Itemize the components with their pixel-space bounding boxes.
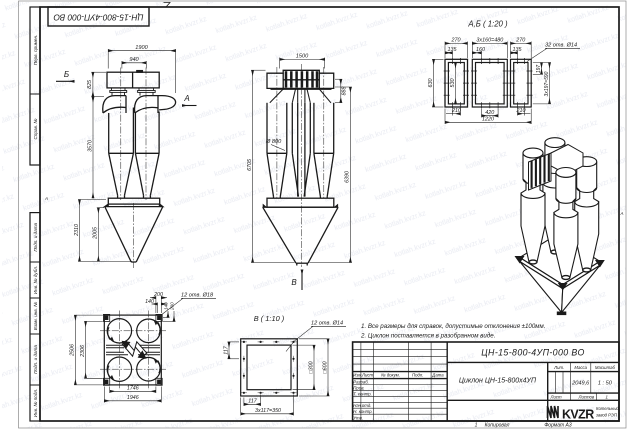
svg-text:420: 420 — [485, 110, 494, 116]
svg-text:3х160=480: 3х160=480 — [476, 38, 503, 44]
svg-text:завод РЭП: завод РЭП — [595, 413, 618, 418]
svg-text:2005: 2005 — [93, 227, 99, 240]
svg-text:Взам. инв. №: Взам. инв. № — [33, 302, 38, 330]
svg-text:Перв. примен.: Перв. примен. — [33, 35, 38, 66]
svg-text:200: 200 — [169, 302, 174, 311]
svg-text:Нач.отд.: Нач.отд. — [353, 403, 371, 408]
svg-text:530: 530 — [450, 79, 456, 88]
svg-text:135: 135 — [513, 47, 523, 53]
svg-text:ЦН-15-800-4УП-000 ВО: ЦН-15-800-4УП-000 ВО — [481, 348, 584, 358]
svg-text:Подп. и дата: Подп. и дата — [33, 222, 38, 251]
svg-text:210: 210 — [451, 108, 461, 114]
svg-text:□300: □300 — [308, 361, 314, 373]
svg-text:2506: 2506 — [70, 344, 76, 357]
svg-text:Т. контр.: Т. контр. — [353, 391, 372, 396]
svg-text:□600: □600 — [322, 361, 328, 373]
svg-text:Котельный: Котельный — [596, 406, 619, 411]
svg-text:1500: 1500 — [296, 53, 309, 59]
svg-text:2. Циклон поставляется в разоб: 2. Циклон поставляется в разобранном вид… — [360, 333, 495, 340]
svg-text:1: 1 — [475, 423, 478, 429]
svg-text:1. Все размеры для справок, до: 1. Все размеры для справок, допустимые о… — [361, 323, 546, 330]
svg-text:В ( 1:10 ): В ( 1:10 ) — [254, 314, 285, 323]
svg-text:Инв. № подл.: Инв. № подл. — [33, 389, 38, 418]
svg-text:2310: 2310 — [74, 224, 80, 237]
svg-text:Листов: Листов — [578, 395, 595, 400]
svg-text:Пров.: Пров. — [353, 385, 364, 390]
svg-text:Масса: Масса — [574, 365, 587, 370]
svg-text:3570: 3570 — [87, 140, 93, 152]
svg-text:630: 630 — [428, 79, 434, 88]
svg-text:Подп.: Подп. — [412, 373, 423, 378]
svg-text:3х197=590: 3х197=590 — [544, 71, 550, 96]
svg-text:2306: 2306 — [80, 345, 86, 358]
svg-text:Справ. №: Справ. № — [33, 119, 38, 140]
svg-text:Копировал: Копировал — [485, 423, 510, 429]
svg-text:1 : 50: 1 : 50 — [598, 381, 613, 387]
svg-text:270: 270 — [515, 38, 525, 44]
svg-text:6390: 6390 — [345, 171, 351, 183]
svg-text:Лист: Лист — [550, 395, 562, 400]
svg-text:Дата: Дата — [431, 373, 444, 378]
svg-text:117: 117 — [248, 399, 257, 405]
svg-text:140: 140 — [163, 302, 168, 310]
svg-text:940: 940 — [129, 57, 139, 63]
svg-text:160: 160 — [476, 47, 485, 53]
svg-text:825: 825 — [87, 80, 93, 89]
svg-text:140: 140 — [145, 299, 154, 305]
svg-text:А: А — [183, 94, 189, 103]
svg-text:В: В — [291, 278, 297, 287]
svg-text:Н. контр.: Н. контр. — [353, 409, 372, 414]
svg-text:117: 117 — [223, 345, 229, 354]
svg-text:6705: 6705 — [247, 159, 253, 171]
svg-text:1746: 1746 — [127, 386, 139, 392]
svg-text:Масштаб: Масштаб — [595, 365, 616, 370]
svg-text:200: 200 — [153, 292, 163, 298]
svg-text:№ докум.: № докум. — [381, 373, 400, 378]
svg-text:А: А — [44, 196, 48, 201]
svg-text:Формат А3: Формат А3 — [544, 423, 572, 429]
svg-text:2049,6: 2049,6 — [571, 381, 590, 387]
svg-text:Инв. № дубл.: Инв. № дубл. — [33, 266, 38, 294]
svg-text:Циклон ЦН-15-800х4УП: Циклон ЦН-15-800х4УП — [459, 378, 537, 385]
svg-text:197: 197 — [536, 65, 542, 74]
svg-text:135: 135 — [448, 47, 458, 53]
svg-text:888: 888 — [341, 87, 347, 96]
svg-text:270: 270 — [451, 38, 461, 44]
svg-text:Б: Б — [64, 70, 69, 79]
svg-text:210: 210 — [516, 108, 526, 114]
svg-text:KVZR: KVZR — [562, 408, 594, 422]
svg-text:ЦН-15-800-4УП-000 ВО: ЦН-15-800-4УП-000 ВО — [53, 13, 144, 23]
svg-text:Утв.: Утв. — [353, 416, 363, 421]
svg-text:А: А — [620, 211, 624, 216]
svg-text:Лит.: Лит. — [553, 365, 564, 370]
svg-text:12 отв. Ø18: 12 отв. Ø18 — [181, 293, 214, 299]
svg-text:Разраб.: Разраб. — [353, 379, 369, 384]
svg-text:А,Б ( 1:20 ): А,Б ( 1:20 ) — [467, 20, 508, 29]
svg-text:1900: 1900 — [135, 45, 148, 51]
svg-text:3х117=350: 3х117=350 — [255, 408, 281, 414]
svg-text:1220: 1220 — [482, 117, 494, 123]
svg-text:Подп. и дата: Подп. и дата — [33, 345, 38, 374]
svg-text:32 отв. Ø14: 32 отв. Ø14 — [545, 43, 577, 49]
svg-text:Лист: Лист — [361, 373, 373, 378]
svg-text:1946: 1946 — [127, 395, 139, 401]
svg-text:12 отв. Ø14: 12 отв. Ø14 — [311, 321, 343, 327]
